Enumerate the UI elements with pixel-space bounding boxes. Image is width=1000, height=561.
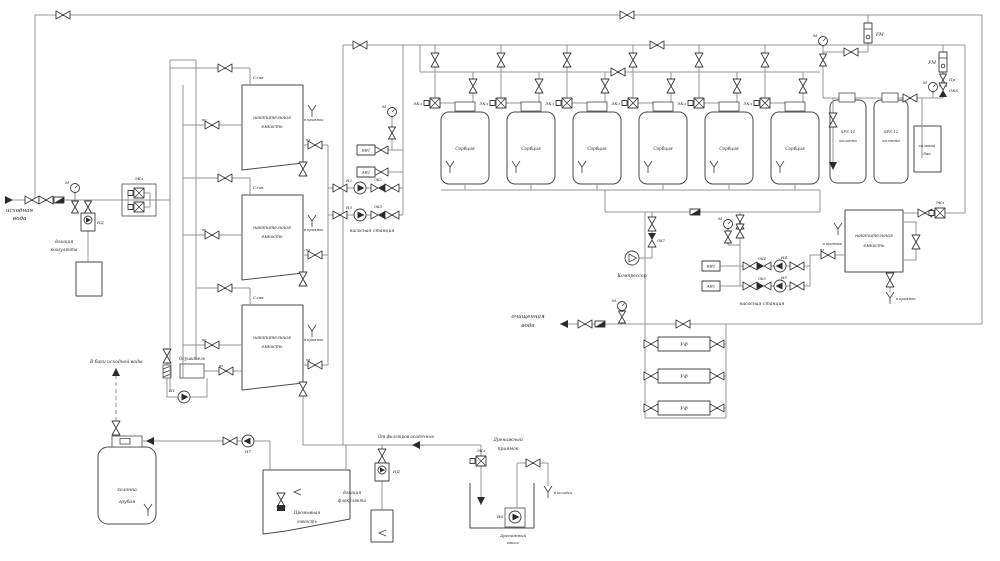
valve-icon: [644, 372, 658, 380]
column-head: [653, 102, 673, 111]
needle-valve-icon: [85, 201, 92, 213]
valve-icon: [299, 382, 307, 396]
valve-icon: [333, 184, 347, 192]
vent-box-label: АВ1: [361, 170, 371, 175]
pressure-gauge-icon: [929, 83, 938, 94]
needle-valve-icon: [389, 127, 396, 139]
solenoid-label: ЭКл: [611, 101, 620, 106]
column-head: [719, 102, 739, 111]
pump-icon: [178, 391, 190, 403]
valve-state-label: нз: [820, 248, 824, 252]
dosing-pump-icon: [81, 213, 95, 231]
pump-icon: [774, 280, 786, 292]
pump-icon: [509, 511, 521, 523]
solenoid-valve-icon: [622, 98, 638, 108]
dosing-pump-label: НД: [96, 220, 104, 225]
valve-icon: [374, 146, 388, 154]
valve-state-label: нз: [219, 364, 223, 368]
label-sfs12: SFS 12: [884, 129, 899, 134]
valve-icon: [743, 282, 757, 290]
valve-icon: [469, 79, 477, 93]
label-coarse-column-1: колонна: [117, 488, 137, 493]
solenoid-label: ЭКл: [545, 101, 554, 106]
valve-icon: [205, 121, 219, 129]
vent-box-label: КВ1: [361, 148, 371, 153]
pump-label: Н2: [345, 178, 352, 183]
column-head: [587, 102, 607, 111]
valve-icon: [648, 217, 656, 231]
label-uv: УФ: [680, 342, 688, 348]
solenoid-valve-icon: [490, 98, 506, 108]
valve-icon: [218, 64, 232, 72]
coarse-column-tank: [98, 447, 156, 524]
label-storage-tank-1: накопительная: [253, 336, 291, 341]
valve-icon: [308, 141, 322, 149]
label-drain-pump-1: Дренажный: [499, 533, 527, 538]
solenoid-valve-icon: [556, 98, 572, 108]
valve-icon: [676, 320, 690, 328]
valve-state-label: нз: [306, 248, 310, 252]
drain-icon: [308, 325, 316, 337]
label-salt-tank-1: солевой: [919, 143, 936, 148]
flow-meter-icon: [864, 23, 872, 43]
compressor-icon: [625, 251, 639, 265]
valve-icon: [790, 282, 804, 290]
check-valve-label: ОК6: [949, 88, 958, 93]
valve-icon: [710, 404, 724, 412]
label-to-sump: в приямок: [823, 242, 843, 246]
valve-icon: [620, 11, 634, 19]
needle-valve-icon: [619, 311, 626, 323]
solenoid-label: ЭКл: [477, 448, 486, 453]
label-sorption: Сорбция: [521, 146, 541, 151]
label-storage-tank-2: емкость: [261, 345, 283, 350]
pump-icon: [354, 182, 366, 194]
storage-tank-right: [845, 210, 903, 272]
check-valve-icon: [648, 233, 656, 247]
valve-icon: [844, 48, 858, 56]
label-pump-station: насосная станция: [350, 229, 395, 234]
column-head: [521, 102, 541, 111]
valve-icon: [526, 459, 540, 467]
flow-arrow-icon: [412, 441, 420, 449]
vent-box-label: АВ2: [706, 284, 716, 289]
vent-box-label: КВ2: [706, 264, 716, 269]
pump-label: Н4: [780, 255, 787, 260]
label-storage-tank-2: емкость: [863, 244, 885, 249]
pump-label: Н1: [168, 388, 175, 393]
valve-icon: [535, 79, 543, 93]
flow-arrow-icon: [560, 320, 568, 328]
drain-icon: [886, 292, 894, 304]
label-sfs12-column: колонна: [882, 138, 900, 143]
label-to-source-tanks: В баки исходной воды: [89, 358, 143, 365]
sfs-head: [839, 93, 855, 102]
flow-arrow-icon: [112, 368, 120, 376]
washing-tank: [263, 470, 350, 534]
valve-icon: [218, 174, 232, 182]
valve-icon: [710, 372, 724, 380]
sampler-label: Пр: [948, 77, 955, 82]
flow-meter-icon: [939, 52, 947, 72]
needle-valve-icon: [725, 231, 732, 243]
label-pump-station: насосная станция: [740, 302, 785, 307]
salt-tank: [914, 126, 941, 172]
coarse-column-cap-slot: [120, 439, 130, 445]
flocculant-tank: [371, 510, 393, 542]
pressure-gauge-label: М: [812, 33, 818, 38]
label-drain: Слив: [253, 185, 264, 190]
valve-icon: [736, 224, 744, 238]
label-coarse-column-2: грубая: [119, 498, 135, 505]
needle-valve-icon: [72, 201, 79, 213]
label-drain: Слив: [253, 75, 264, 80]
label-source-water-2: вода: [13, 216, 26, 222]
valve-icon: [385, 184, 399, 192]
valve-icon: [308, 251, 322, 259]
dosing-pump-icon: [375, 463, 389, 481]
piping: [10, 15, 982, 510]
solenoid-label: ЭКл: [413, 101, 422, 106]
solenoid-valve-icon: [688, 98, 704, 108]
check-valve-icon: [371, 211, 385, 219]
pump-label: Н6: [496, 514, 503, 519]
label-sorption: Сорбция: [719, 146, 739, 151]
label-uv: УФ: [680, 374, 688, 380]
sample-point-icon: [595, 321, 605, 327]
valve-icon: [611, 68, 625, 76]
valve-icon: [39, 196, 53, 204]
coagulant-tank: [76, 262, 102, 296]
solenoid-label: ЭКл: [135, 176, 144, 181]
pressure-gauge-label: М: [381, 104, 387, 109]
label-clean-water-2: вода: [521, 323, 534, 329]
label-sorption: Сорбция: [455, 146, 475, 151]
valve-icon: [205, 341, 219, 349]
check-valve-label: ОК7: [657, 239, 666, 243]
flow-arrow-icon: [5, 196, 13, 204]
label-compressor: Компрессор: [617, 273, 647, 279]
pump-label: Н5: [780, 275, 787, 280]
pressure-gauge-label: М: [922, 80, 928, 85]
label-storage-tank-2: емкость: [261, 235, 283, 240]
label-coagulant-dosing-1: дозация: [55, 239, 74, 244]
label-sfs11-column: колонна: [839, 138, 857, 143]
valve-icon: [799, 79, 807, 93]
label-washing-tank-2: емкость: [297, 519, 317, 524]
valve-icon: [710, 340, 724, 348]
label-uv: УФ: [680, 406, 688, 412]
pump-icon: [242, 435, 254, 447]
label-sorption: Сорбция: [785, 146, 805, 151]
valve-icon: [308, 361, 322, 369]
solenoid-label: ЭКл: [743, 101, 752, 106]
valve-icon: [374, 168, 388, 176]
water-treatment-pid-diagram: исходная вода М М М М М М дозация коагул…: [0, 0, 1000, 561]
label-dryer: Осушитель: [179, 356, 206, 361]
valve-icon: [601, 79, 609, 93]
valve-icon: [378, 449, 386, 463]
label-to-sump: в приямок: [304, 338, 324, 342]
flow-arrow-icon: [146, 437, 154, 445]
check-valve-label: ОК4: [758, 257, 766, 261]
needle-valve-icon: [820, 54, 827, 66]
pressure-gauge-label: М: [64, 180, 70, 185]
valve-icon: [629, 53, 637, 67]
label-storage-tank-1: накопительная: [253, 226, 291, 231]
valve-icon: [743, 262, 757, 270]
pressure-gauge-icon: [724, 220, 733, 231]
dryer-box: [180, 364, 204, 378]
pressure-gauge-icon: [71, 184, 80, 195]
label-salt-tank-2: бак: [923, 151, 931, 156]
label-sorption: Сорбция: [587, 146, 607, 151]
flow-meter-label: FM: [875, 32, 884, 38]
valve-icon: [497, 53, 505, 67]
tank-drain-icon: [277, 505, 285, 511]
label-to-sump: в приямок: [304, 228, 324, 232]
pump-icon: [354, 209, 366, 221]
label-to-sump: в приямок: [304, 118, 324, 122]
valve-icon: [761, 53, 769, 67]
label-to-well: в колодец: [554, 491, 573, 495]
sample-point-icon: [690, 209, 700, 215]
label-flocculant-dosing-1: дозация: [343, 490, 362, 495]
valve-icon: [219, 367, 233, 375]
solenoid-label: ЭКл: [479, 101, 488, 106]
valve-icon: [912, 235, 920, 249]
valve-state-label: нз: [306, 358, 310, 362]
valve-icon: [353, 41, 367, 49]
drain-icon: [544, 486, 552, 498]
label-storage-tank-1: накопительная: [855, 234, 893, 239]
valve-icon: [218, 284, 232, 292]
solenoid-label: ЭКл: [936, 200, 945, 205]
valve-icon: [431, 53, 439, 67]
label-coagulant-dosing-2: коагулянта: [51, 247, 78, 252]
label-sfs11: SFS 11: [841, 129, 856, 134]
drain-icon: [308, 215, 316, 227]
check-valve-label: ОК3: [374, 205, 383, 209]
check-valve-label: ОК2: [374, 178, 383, 182]
pressure-gauge-label: М: [717, 216, 723, 221]
valve-icon: [112, 421, 120, 435]
pressure-gauge-icon: [388, 108, 397, 119]
label-from-filters: От фильтров осадочных: [378, 434, 435, 439]
label-drain-pump-2: насос: [507, 540, 520, 545]
valve-icon: [333, 211, 347, 219]
solenoid-label: ЭКл: [677, 101, 686, 106]
valve-icon: [644, 340, 658, 348]
valve-icon: [733, 79, 741, 93]
drain-icon: [308, 105, 316, 117]
valve-icon: [563, 53, 571, 67]
valve-icon: [650, 41, 664, 49]
solenoid-valve-icon: [424, 98, 440, 108]
pressure-gauge-icon: [618, 302, 627, 313]
valve-icon: [25, 196, 39, 204]
valve-state-label: но: [202, 338, 206, 342]
valve-icon: [299, 162, 307, 176]
check-valve-icon: [371, 184, 385, 192]
label-clean-water-1: очищенная: [511, 314, 545, 320]
valve-icon: [578, 320, 592, 328]
valve-icon: [667, 79, 675, 93]
pump-label: Н7: [244, 449, 251, 454]
column-head: [785, 102, 805, 111]
valve-icon: [790, 262, 804, 270]
valve-state-label: но: [202, 118, 206, 122]
label-drain-sump-1: Дренажный: [492, 437, 523, 443]
solenoid-valve-icon: [470, 456, 486, 466]
valve-icon: [644, 404, 658, 412]
label-source-water-1: исходная: [6, 208, 33, 214]
valve-icon: [56, 11, 70, 19]
label-washing-tank-1: Промывная: [293, 510, 320, 515]
label-drain-sump-2: приямок: [498, 447, 519, 452]
vessels: [76, 85, 941, 542]
valve-state-label: но: [202, 228, 206, 232]
valve-icon: [695, 53, 703, 67]
check-valve-label: ОК5: [758, 277, 767, 281]
label-sorption: Сорбция: [653, 146, 673, 151]
solenoid-valve-icon: [754, 98, 770, 108]
valve-icon: [903, 94, 917, 102]
valve-icon: [299, 272, 307, 286]
pressure-gauge-label: М: [611, 298, 617, 303]
label-flocculant-dosing-2: флокулянта: [338, 498, 367, 503]
label-storage-tank-1: накопительная: [253, 116, 291, 121]
label-to-sump: в приямок: [896, 297, 916, 301]
flow-meter-label: FM: [927, 60, 936, 66]
valve-icon: [821, 251, 835, 259]
valve-icon: [223, 437, 237, 445]
column-head: [455, 102, 475, 111]
label-storage-tank-2: емкость: [261, 125, 283, 130]
pump-label: Н3: [345, 205, 352, 210]
drain-icon: [834, 223, 842, 235]
check-valve-icon: [757, 282, 771, 290]
sfs-head: [882, 93, 898, 102]
label-drain: Слив: [253, 295, 264, 300]
valve-icon: [886, 273, 894, 287]
check-valve-icon: [757, 262, 771, 270]
pump-icon: [774, 260, 786, 272]
sample-point-icon: [54, 197, 64, 203]
valve-state-label: нз: [306, 138, 310, 142]
dosing-pump-label: НД: [392, 469, 400, 474]
valve-icon: [205, 231, 219, 239]
check-valve-icon: [939, 83, 947, 97]
diagram-canvas: исходная вода М М М М М М дозация коагул…: [0, 0, 1000, 561]
valve-icon: [385, 211, 399, 219]
